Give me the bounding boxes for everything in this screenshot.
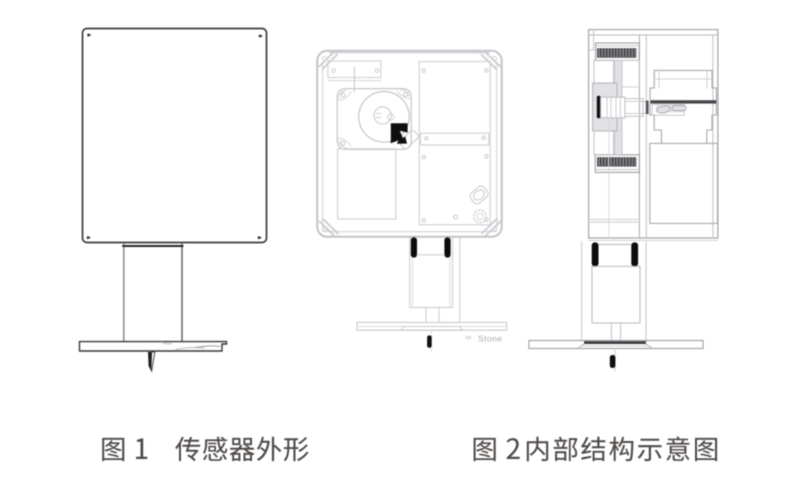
svg-text:Stone: Stone <box>478 334 502 344</box>
